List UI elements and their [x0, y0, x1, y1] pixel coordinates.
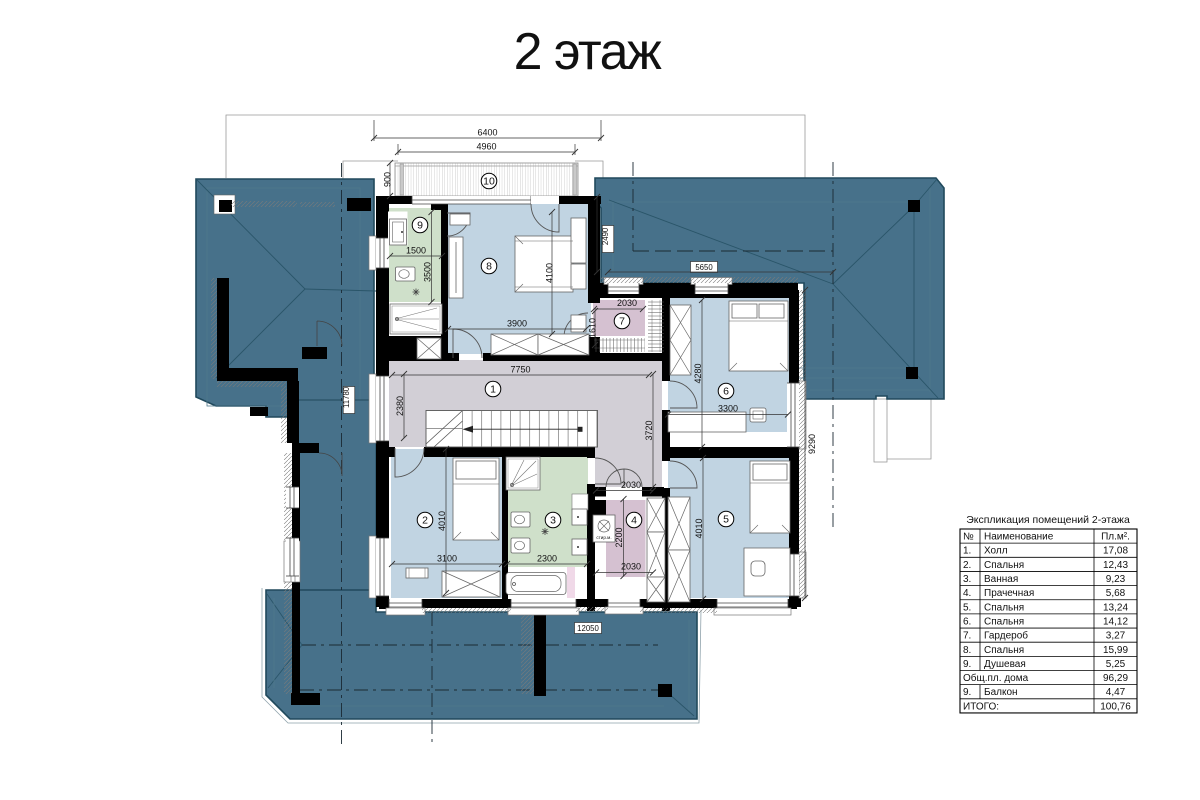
- svg-text:100,76: 100,76: [1100, 701, 1131, 712]
- svg-text:4960: 4960: [476, 142, 496, 152]
- svg-text:900: 900: [383, 172, 393, 187]
- svg-text:3900: 3900: [507, 319, 527, 329]
- svg-text:2380: 2380: [395, 396, 405, 416]
- svg-text:Наименование: Наименование: [984, 532, 1054, 543]
- svg-text:9: 9: [417, 220, 423, 232]
- svg-text:4010: 4010: [694, 518, 704, 538]
- svg-text:1610: 1610: [588, 318, 598, 338]
- svg-text:14,12: 14,12: [1103, 616, 1128, 627]
- svg-text:2030: 2030: [617, 298, 637, 308]
- svg-text:10: 10: [483, 176, 495, 188]
- svg-text:№: №: [963, 532, 974, 543]
- svg-text:Спальня: Спальня: [984, 602, 1024, 613]
- svg-text:5,25: 5,25: [1106, 659, 1126, 670]
- svg-text:4.: 4.: [963, 588, 971, 599]
- svg-text:5650: 5650: [695, 263, 713, 272]
- svg-text:стир.м.: стир.м.: [596, 535, 611, 540]
- svg-text:2490: 2490: [601, 227, 610, 245]
- svg-text:1.: 1.: [963, 546, 971, 557]
- svg-text:5.: 5.: [963, 602, 971, 613]
- svg-text:3300: 3300: [718, 404, 738, 414]
- svg-text:7.: 7.: [963, 631, 971, 642]
- svg-text:1: 1: [490, 384, 496, 396]
- svg-text:2030: 2030: [621, 480, 641, 490]
- svg-text:6: 6: [723, 386, 729, 398]
- svg-text:1500: 1500: [406, 246, 426, 256]
- svg-text:5,68: 5,68: [1106, 588, 1126, 599]
- svg-text:4,47: 4,47: [1106, 687, 1126, 698]
- svg-text:Экспликация помещений 2-этажа: Экспликация помещений 2-этажа: [966, 514, 1130, 526]
- svg-text:8.: 8.: [963, 645, 971, 656]
- svg-text:7750: 7750: [510, 365, 530, 375]
- svg-text:4: 4: [631, 515, 637, 527]
- svg-text:12,43: 12,43: [1103, 560, 1128, 571]
- svg-text:96,29: 96,29: [1103, 673, 1128, 684]
- svg-text:3: 3: [550, 515, 556, 527]
- svg-text:Балкон: Балкон: [984, 687, 1018, 698]
- svg-text:7: 7: [619, 316, 625, 328]
- svg-text:3720: 3720: [644, 420, 654, 440]
- svg-text:3500: 3500: [423, 262, 433, 282]
- svg-text:3.: 3.: [963, 574, 971, 585]
- svg-text:3,27: 3,27: [1106, 631, 1126, 642]
- svg-text:Душевая: Душевая: [984, 659, 1026, 670]
- svg-text:6.: 6.: [963, 616, 971, 627]
- svg-text:2200: 2200: [614, 527, 624, 547]
- svg-text:9,23: 9,23: [1106, 574, 1126, 585]
- svg-text:2300: 2300: [537, 554, 557, 564]
- svg-text:8: 8: [486, 261, 492, 273]
- svg-text:Пл.м².: Пл.м².: [1101, 532, 1130, 543]
- svg-text:6400: 6400: [477, 128, 497, 138]
- svg-text:5: 5: [723, 514, 729, 526]
- svg-text:Прачечная: Прачечная: [984, 588, 1034, 599]
- svg-text:4100: 4100: [545, 263, 555, 283]
- svg-text:2030: 2030: [621, 562, 641, 572]
- svg-text:9.: 9.: [963, 659, 971, 670]
- svg-text:Спальня: Спальня: [984, 560, 1024, 571]
- svg-text:3100: 3100: [437, 554, 457, 564]
- svg-text:12050: 12050: [577, 624, 599, 633]
- svg-text:Холл: Холл: [984, 546, 1008, 557]
- svg-text:4010: 4010: [437, 511, 447, 531]
- svg-text:9.: 9.: [963, 687, 971, 698]
- svg-text:9290: 9290: [807, 434, 817, 454]
- svg-text:11780: 11780: [342, 386, 351, 408]
- svg-text:2 этаж: 2 этаж: [514, 23, 662, 81]
- svg-text:17,08: 17,08: [1103, 546, 1128, 557]
- svg-text:15,99: 15,99: [1103, 645, 1128, 656]
- svg-text:2.: 2.: [963, 560, 971, 571]
- svg-text:Ванная: Ванная: [984, 574, 1018, 585]
- svg-text:Спальня: Спальня: [984, 645, 1024, 656]
- svg-text:Спальня: Спальня: [984, 616, 1024, 627]
- svg-text:Гардероб: Гардероб: [984, 630, 1028, 642]
- svg-text:ИТОГО:: ИТОГО:: [963, 701, 999, 712]
- svg-text:4280: 4280: [693, 363, 703, 383]
- svg-text:13,24: 13,24: [1103, 602, 1128, 613]
- svg-text:2: 2: [422, 515, 428, 527]
- svg-text:Общ.пл. дома: Общ.пл. дома: [963, 672, 1029, 684]
